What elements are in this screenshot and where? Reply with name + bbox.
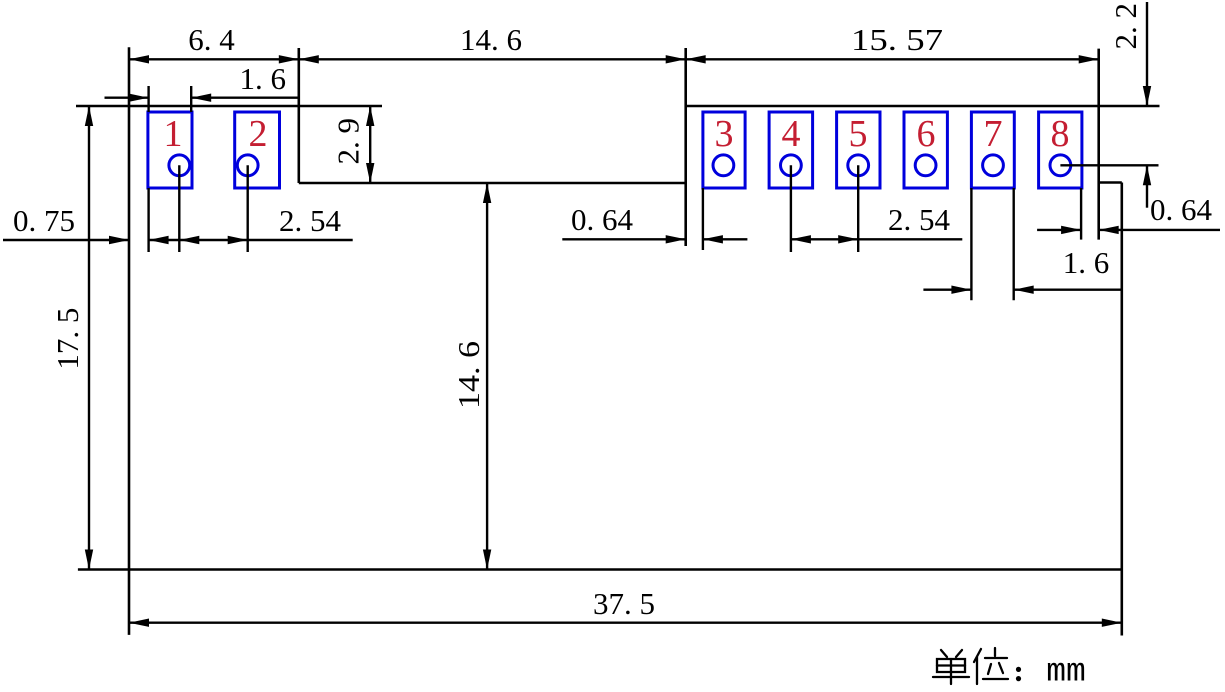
svg-text:6: 6 [917,113,936,155]
svg-text:37. 5: 37. 5 [593,586,655,621]
svg-text:6. 4: 6. 4 [188,22,235,57]
svg-text:8: 8 [1051,113,1070,155]
svg-text:0. 64: 0. 64 [1150,192,1213,227]
svg-text:3: 3 [715,113,734,155]
svg-text:1. 6: 1. 6 [1063,245,1110,280]
svg-text:1. 6: 1. 6 [240,61,287,96]
svg-text:15. 57: 15. 57 [851,22,943,57]
svg-text:14. 6: 14. 6 [451,341,486,409]
svg-text:2: 2 [249,113,268,155]
svg-text:2. 2: 2. 2 [1108,3,1143,50]
svg-text:5: 5 [849,113,868,155]
svg-text:7: 7 [984,113,1003,155]
svg-text:4: 4 [782,113,801,155]
svg-text:14. 6: 14. 6 [460,22,522,57]
svg-text:1: 1 [164,113,183,155]
svg-text:0. 75: 0. 75 [13,203,75,238]
svg-text:2. 9: 2. 9 [331,118,366,165]
svg-text:2. 54: 2. 54 [888,202,951,237]
svg-text:17. 5: 17. 5 [50,308,85,370]
svg-text:0. 64: 0. 64 [571,202,634,237]
svg-text:2. 54: 2. 54 [279,203,342,238]
svg-text:mm: mm [1046,653,1086,690]
